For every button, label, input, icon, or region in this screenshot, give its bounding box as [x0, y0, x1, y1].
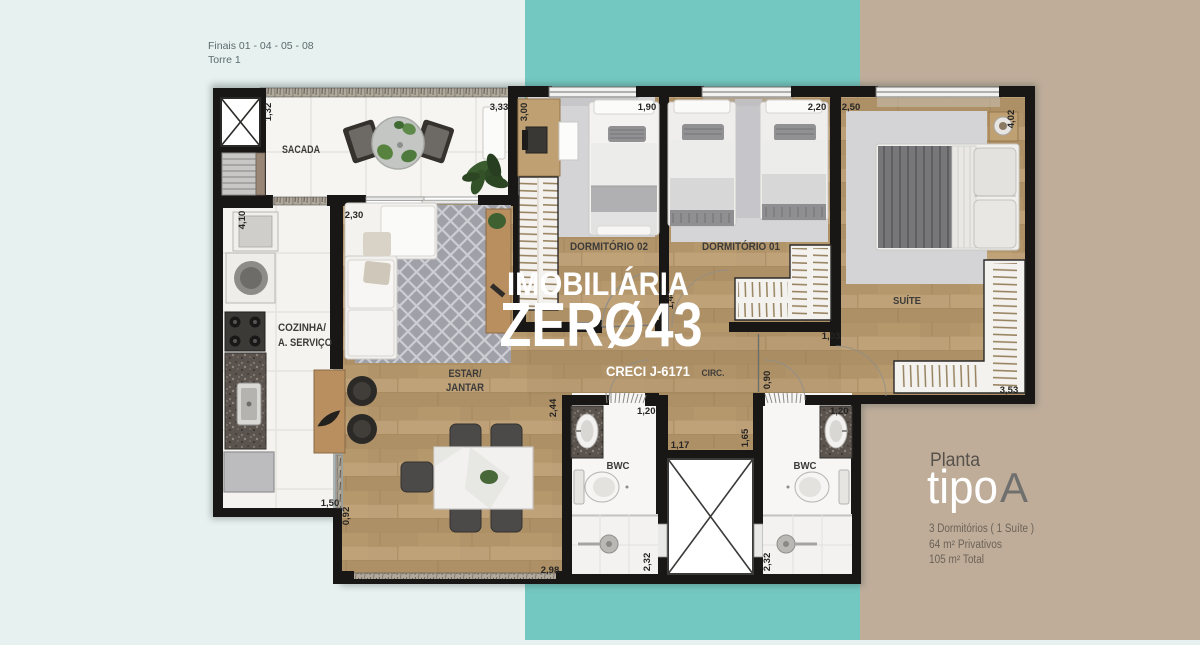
svg-text:0,90: 0,90 — [762, 371, 773, 390]
svg-text:3,00: 3,00 — [519, 103, 530, 122]
svg-text:SUÍTE: SUÍTE — [893, 294, 921, 307]
svg-text:1,20: 1,20 — [830, 406, 849, 417]
svg-text:ESTAR/: ESTAR/ — [449, 368, 482, 380]
svg-text:1,03: 1,03 — [822, 331, 841, 342]
svg-text:DORMITÓRIO 02: DORMITÓRIO 02 — [570, 240, 648, 253]
svg-text:2,30: 2,30 — [345, 210, 364, 221]
svg-text:DORMITÓRIO 01: DORMITÓRIO 01 — [702, 240, 780, 253]
svg-text:2,98: 2,98 — [541, 565, 560, 576]
svg-text:BWC: BWC — [794, 461, 817, 472]
svg-text:2,44: 2,44 — [548, 398, 559, 417]
svg-text:A: A — [1000, 464, 1028, 511]
svg-text:A. SERVIÇO: A. SERVIÇO — [278, 337, 332, 349]
svg-text:4,02: 4,02 — [1006, 110, 1017, 129]
svg-text:2,20: 2,20 — [808, 102, 827, 113]
svg-text:1,90: 1,90 — [638, 102, 657, 113]
svg-text:SACADA: SACADA — [282, 144, 320, 156]
svg-text:CIRC.: CIRC. — [702, 368, 725, 378]
svg-text:Finais 01 - 04 - 05 - 08: Finais 01 - 04 - 05 - 08 — [208, 40, 314, 52]
svg-text:1,17: 1,17 — [671, 440, 690, 451]
svg-text:3 Dormitórios ( 1 Suíte ): 3 Dormitórios ( 1 Suíte ) — [929, 523, 1034, 535]
svg-text:3,53: 3,53 — [1000, 385, 1019, 396]
svg-text:tipo: tipo — [927, 460, 998, 513]
svg-text:2,50: 2,50 — [842, 102, 861, 113]
svg-text:105 m² Total: 105 m² Total — [929, 554, 984, 566]
svg-text:CRECI J-6171: CRECI J-6171 — [606, 364, 690, 379]
svg-text:1,20: 1,20 — [637, 406, 656, 417]
svg-text:3,33: 3,33 — [490, 102, 509, 113]
svg-text:2,32: 2,32 — [762, 553, 773, 572]
svg-text:2,32: 2,32 — [642, 553, 653, 572]
svg-text:0,92: 0,92 — [341, 507, 352, 526]
svg-text:COZINHA/: COZINHA/ — [278, 322, 326, 334]
svg-text:Torre 1: Torre 1 — [208, 54, 241, 66]
svg-text:64 m² Privativos: 64 m² Privativos — [929, 539, 1002, 551]
svg-text:1,50: 1,50 — [321, 498, 340, 509]
svg-text:BWC: BWC — [607, 461, 630, 472]
svg-text:1,65: 1,65 — [740, 428, 751, 447]
svg-text:ZERØ43: ZERØ43 — [500, 291, 703, 360]
svg-text:JANTAR: JANTAR — [446, 382, 484, 394]
svg-text:4,10: 4,10 — [237, 211, 248, 230]
svg-text:1,32: 1,32 — [263, 103, 274, 122]
